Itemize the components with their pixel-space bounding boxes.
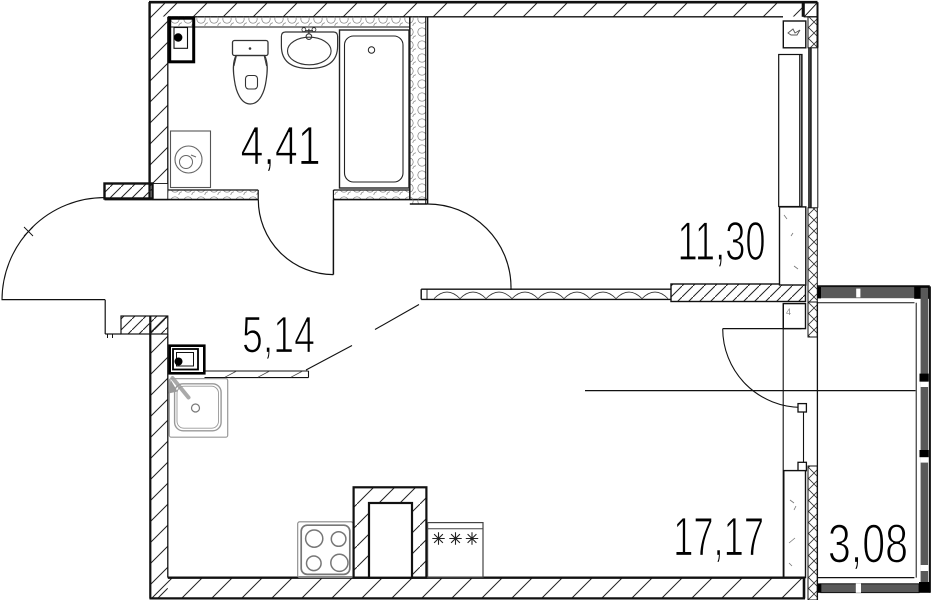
svg-text:5,14: 5,14 xyxy=(242,305,315,364)
svg-text:4: 4 xyxy=(786,307,791,317)
svg-text:17,17: 17,17 xyxy=(673,506,764,567)
svg-text:3,08: 3,08 xyxy=(828,514,908,575)
svg-text:11,30: 11,30 xyxy=(677,210,765,271)
svg-text:4,41: 4,41 xyxy=(240,116,320,177)
